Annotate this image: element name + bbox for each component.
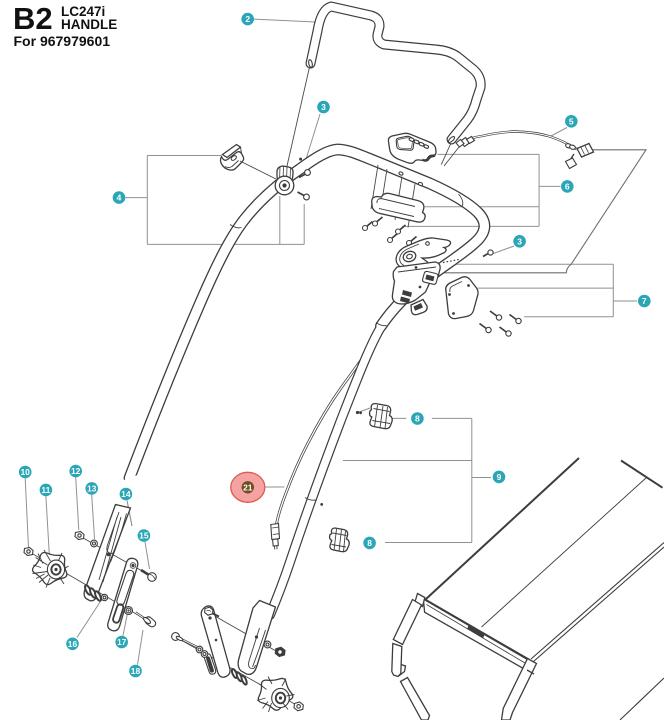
svg-text:17: 17: [117, 637, 127, 647]
svg-text:HANDLE: HANDLE: [61, 17, 117, 32]
svg-text:2: 2: [245, 14, 250, 24]
svg-text:15: 15: [139, 531, 149, 541]
svg-text:8: 8: [367, 538, 372, 548]
svg-text:7: 7: [642, 296, 647, 306]
svg-text:3: 3: [321, 102, 326, 112]
svg-text:9: 9: [497, 472, 502, 482]
svg-text:11: 11: [41, 485, 50, 495]
svg-text:6: 6: [565, 182, 570, 192]
svg-text:5: 5: [569, 116, 574, 126]
svg-text:14: 14: [121, 489, 131, 499]
svg-text:3: 3: [517, 236, 522, 246]
svg-text:For 967979601: For 967979601: [14, 33, 111, 49]
svg-text:10: 10: [20, 467, 30, 477]
svg-text:B2: B2: [13, 1, 53, 36]
svg-text:16: 16: [68, 639, 78, 649]
svg-text:12: 12: [71, 466, 81, 476]
svg-text:8: 8: [415, 414, 420, 424]
svg-text:18: 18: [131, 666, 141, 676]
svg-text:4: 4: [117, 193, 122, 203]
svg-text:21: 21: [243, 482, 253, 492]
svg-text:13: 13: [87, 484, 97, 494]
